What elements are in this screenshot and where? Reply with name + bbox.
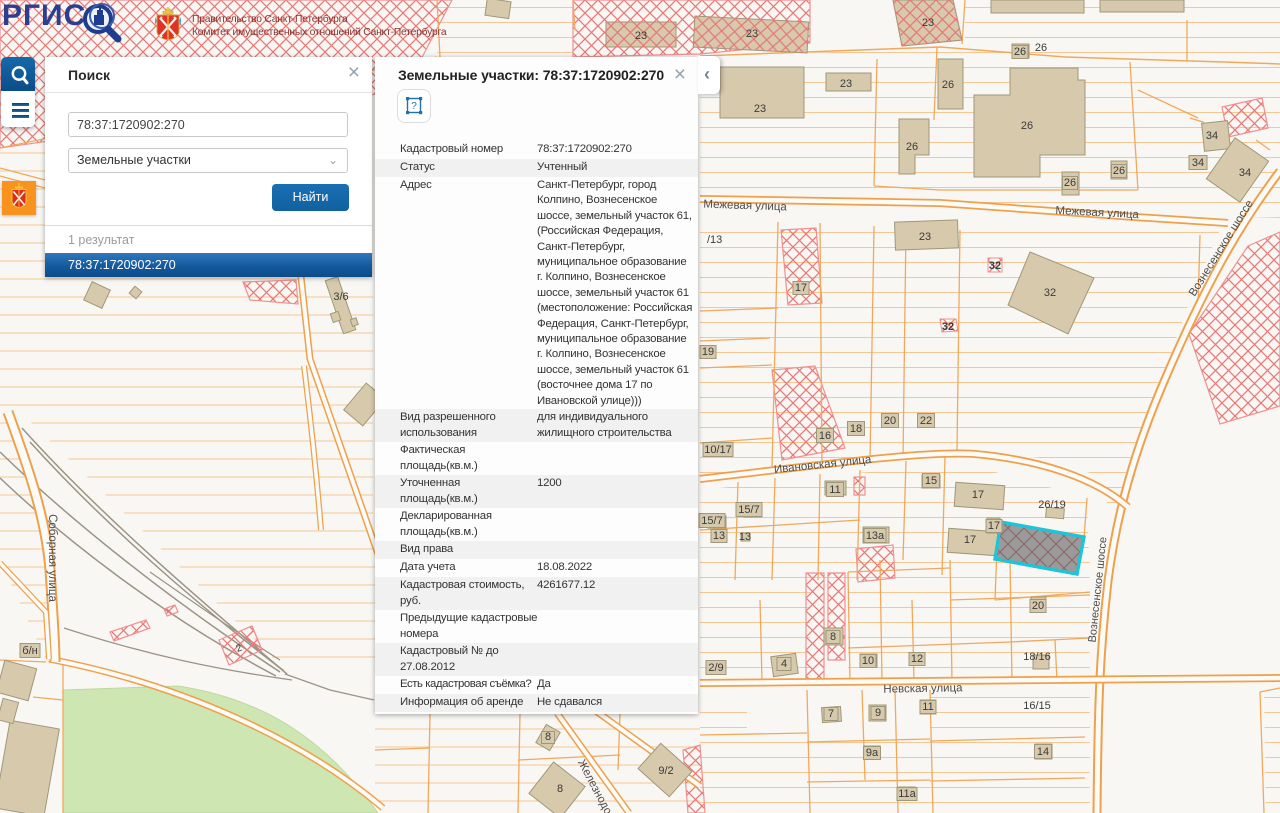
- svg-text:9/2: 9/2: [658, 765, 673, 777]
- svg-text:26: 26: [1021, 120, 1033, 132]
- svg-text:23: 23: [840, 78, 852, 90]
- svg-text:13: 13: [713, 530, 725, 542]
- svg-text:22: 22: [920, 415, 932, 427]
- svg-text:/13: /13: [707, 234, 722, 246]
- svg-text:13: 13: [739, 531, 751, 543]
- svg-text:18: 18: [850, 423, 862, 435]
- svg-text:34: 34: [1239, 167, 1251, 179]
- svg-text:2/9: 2/9: [708, 662, 723, 674]
- svg-text:19: 19: [702, 346, 714, 358]
- svg-text:17: 17: [988, 520, 1000, 532]
- svg-text:?: ?: [411, 101, 417, 112]
- svg-text:26: 26: [1064, 177, 1076, 189]
- svg-text:23: 23: [746, 28, 758, 40]
- svg-text:10/17: 10/17: [704, 444, 732, 456]
- svg-text:34: 34: [1206, 130, 1218, 142]
- svg-text:16: 16: [819, 430, 831, 442]
- svg-text:26: 26: [906, 141, 918, 153]
- svg-text:10: 10: [862, 655, 874, 667]
- svg-text:26/19: 26/19: [1038, 499, 1066, 511]
- svg-text:23: 23: [919, 231, 931, 243]
- svg-text:17: 17: [795, 282, 807, 294]
- svg-text:Невская улица: Невская улица: [883, 682, 963, 695]
- svg-text:11а: 11а: [898, 788, 916, 800]
- svg-text:9а: 9а: [866, 747, 879, 759]
- svg-text:26: 26: [942, 79, 954, 91]
- svg-text:34: 34: [1192, 157, 1204, 169]
- svg-text:б/н: б/н: [22, 645, 37, 657]
- svg-text:9: 9: [875, 707, 881, 719]
- svg-text:26: 26: [1113, 165, 1125, 177]
- svg-text:15/7: 15/7: [738, 504, 759, 516]
- svg-text:32: 32: [1044, 287, 1056, 299]
- svg-text:20: 20: [884, 415, 896, 427]
- svg-text:32: 32: [989, 260, 1001, 272]
- svg-text:17: 17: [964, 534, 976, 546]
- svg-text:17: 17: [972, 489, 984, 501]
- svg-text:14: 14: [1037, 746, 1049, 758]
- svg-text:26: 26: [1035, 42, 1047, 54]
- svg-text:15: 15: [925, 475, 937, 487]
- svg-text:32: 32: [942, 321, 954, 333]
- svg-text:23: 23: [922, 17, 934, 29]
- svg-text:11: 11: [922, 701, 933, 713]
- svg-text:16/15: 16/15: [1023, 700, 1051, 712]
- svg-text:20: 20: [1032, 600, 1044, 612]
- svg-text:Соборная улица: Соборная улица: [46, 514, 58, 602]
- svg-text:11: 11: [829, 484, 840, 496]
- svg-text:13а: 13а: [866, 530, 885, 542]
- svg-text:8: 8: [545, 731, 551, 743]
- svg-text:3/6: 3/6: [333, 291, 348, 303]
- svg-text:15/7: 15/7: [701, 515, 722, 527]
- svg-text:7: 7: [828, 708, 834, 720]
- svg-text:18/16: 18/16: [1023, 651, 1051, 663]
- svg-text:8: 8: [557, 783, 563, 795]
- svg-text:23: 23: [754, 103, 766, 115]
- svg-text:12: 12: [911, 653, 923, 665]
- svg-text:4: 4: [781, 658, 787, 670]
- svg-text:8: 8: [830, 631, 836, 643]
- svg-text:26: 26: [1014, 46, 1026, 58]
